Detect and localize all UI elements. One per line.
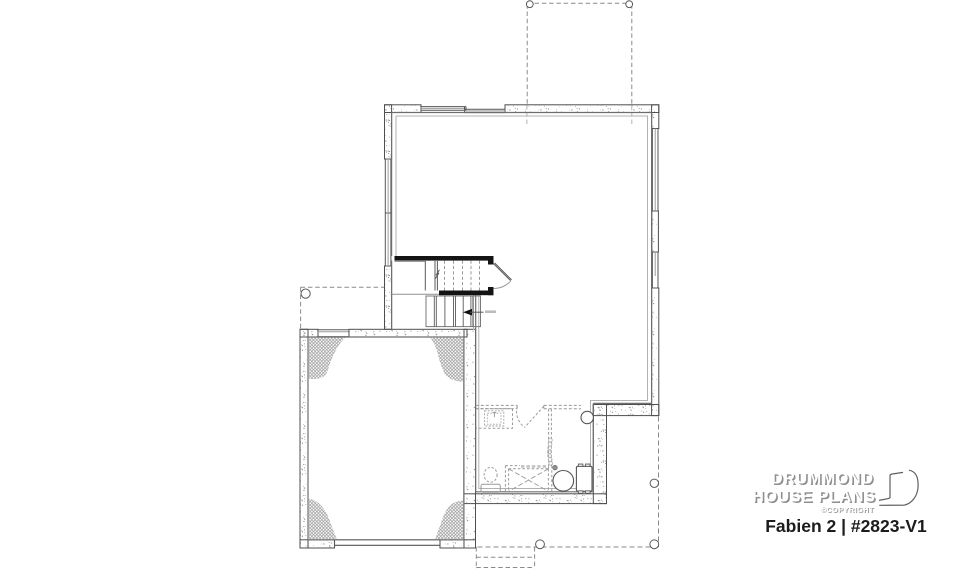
svg-text:©COPYRIGHT: ©COPYRIGHT <box>820 505 874 514</box>
svg-text:DRUMMOND: DRUMMOND <box>771 471 874 488</box>
svg-text:HOUSE PLANS: HOUSE PLANS <box>752 489 875 506</box>
svg-text:Fabien 2 | #2823-V1: Fabien 2 | #2823-V1 <box>765 516 927 536</box>
